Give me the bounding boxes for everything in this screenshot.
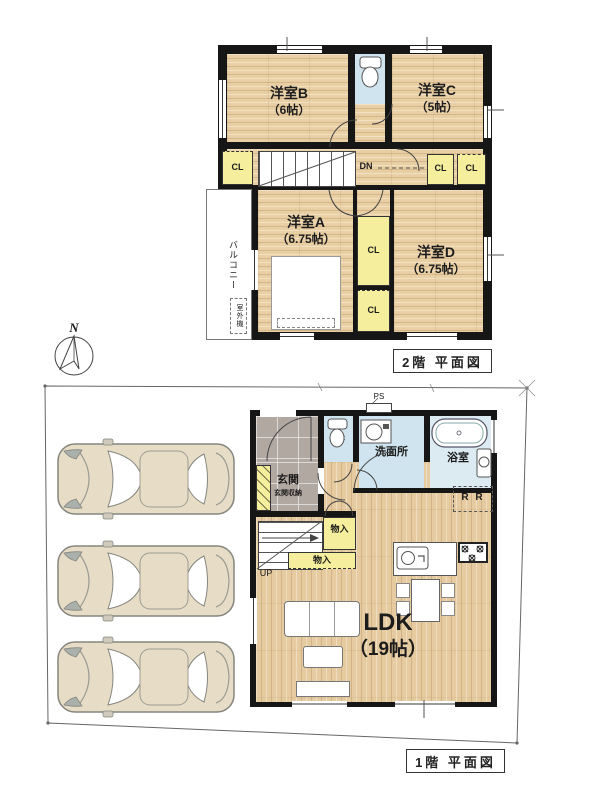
balcony-door <box>251 250 258 290</box>
window-1f-bottom-left <box>292 701 347 707</box>
fridge-label: R R <box>453 492 493 505</box>
wc1f-label: WC <box>324 434 353 444</box>
room-c-label: 洋室C （5帖） <box>387 82 487 115</box>
bed-pillow <box>277 318 335 328</box>
room-b-label: 洋室B （6帖） <box>239 85 339 118</box>
dn-label: DN <box>352 161 380 172</box>
window-2f-top-b <box>277 46 322 53</box>
ldk-label: LDK （19帖） <box>338 608 438 662</box>
dining-chair-3 <box>441 583 455 598</box>
kitchen-counter <box>393 542 457 576</box>
closet-2f-left-label: CL <box>222 162 253 173</box>
parking-label-3: 想定駐車スペース 4700×2000 <box>124 664 200 689</box>
closet-2f-right2-label: CL <box>457 163 486 174</box>
parking-label-1-line2: 4700×2000 <box>125 478 199 490</box>
storage-b-label: 物入 <box>288 555 356 566</box>
entrance-storage-box <box>256 465 271 511</box>
storage-a-label: 物入 <box>323 524 356 535</box>
ldk-name: LDK <box>338 608 438 638</box>
window-1f-bottom-right <box>395 701 455 707</box>
entrance-door-gap <box>318 468 324 494</box>
washroom-label: 洗面所 <box>359 446 424 460</box>
parking-label-3-line2: 4700×2000 <box>125 676 199 688</box>
room-a-size: （6.75帖） <box>256 232 356 247</box>
parking-label-2-line1: 想定駐車スペース <box>125 570 199 580</box>
room-d-size: （6.75帖） <box>386 262 486 277</box>
window-2f-left-b <box>219 80 226 138</box>
ps-box <box>366 403 392 413</box>
parking-label-3-line1: 想定駐車スペース <box>125 666 199 676</box>
parking-label-2-line2: 4700×2000 <box>125 580 199 592</box>
closet-gap-floor <box>357 190 390 216</box>
window-2f-bottom-a <box>280 333 314 340</box>
room-c-size: （5帖） <box>387 100 487 115</box>
dining-chair-4 <box>441 601 455 616</box>
porch-door-gap <box>260 410 296 417</box>
window-1f-left <box>250 598 257 644</box>
window-1f-bath <box>491 420 497 453</box>
stairs-2f <box>258 151 356 187</box>
ps-label: PS <box>366 392 392 402</box>
porch-floor <box>256 416 318 462</box>
parking-label-2: 想定駐車スペース 4700×2000 <box>124 568 200 593</box>
room-a-label: 洋室A （6.75帖） <box>256 214 356 247</box>
stove <box>458 542 488 563</box>
entrance-storage-label: 玄関収納 <box>262 490 314 499</box>
closet-2f-right1-label: CL <box>427 163 454 174</box>
floor2-title: 2階 平面図 <box>393 349 492 373</box>
balcony-label: バルコニー <box>226 228 238 302</box>
closet-2f-mid2-label: CL <box>357 305 390 316</box>
window-2f-bottom-d <box>407 333 457 340</box>
coffee-table <box>303 646 343 668</box>
hall2f-center-floor <box>355 104 385 142</box>
room-d-label: 洋室D （6.75帖） <box>386 244 486 277</box>
wc2f-label: WC <box>355 77 385 88</box>
room-d-name: 洋室D <box>386 244 486 262</box>
closet-2f-mid1-label: CL <box>357 245 390 256</box>
parking-label-1-line1: 想定駐車スペース <box>125 468 199 478</box>
tv-board <box>296 681 350 697</box>
room-a-name: 洋室A <box>256 214 356 232</box>
room-b-name: 洋室B <box>239 85 339 103</box>
floor1-title: 1階 平面図 <box>406 749 505 773</box>
bath-label: 浴室 <box>430 452 486 466</box>
floorplan-page: バルコニー 室外機 洋室B （6帖） <box>0 0 600 800</box>
ldk-size: （19帖） <box>338 638 438 662</box>
outdoor-unit-label: 室外機 <box>234 301 243 331</box>
room-b-size: （6帖） <box>239 103 339 118</box>
up-label: UP <box>254 568 278 579</box>
parking-label-1: 想定駐車スペース 4700×2000 <box>124 466 200 491</box>
entrance-label: 玄関 <box>262 474 314 488</box>
dining-chair-1 <box>396 583 410 598</box>
compass-n-label: N <box>64 320 84 336</box>
room-c-name: 洋室C <box>387 82 487 100</box>
window-2f-top-c <box>410 46 442 53</box>
